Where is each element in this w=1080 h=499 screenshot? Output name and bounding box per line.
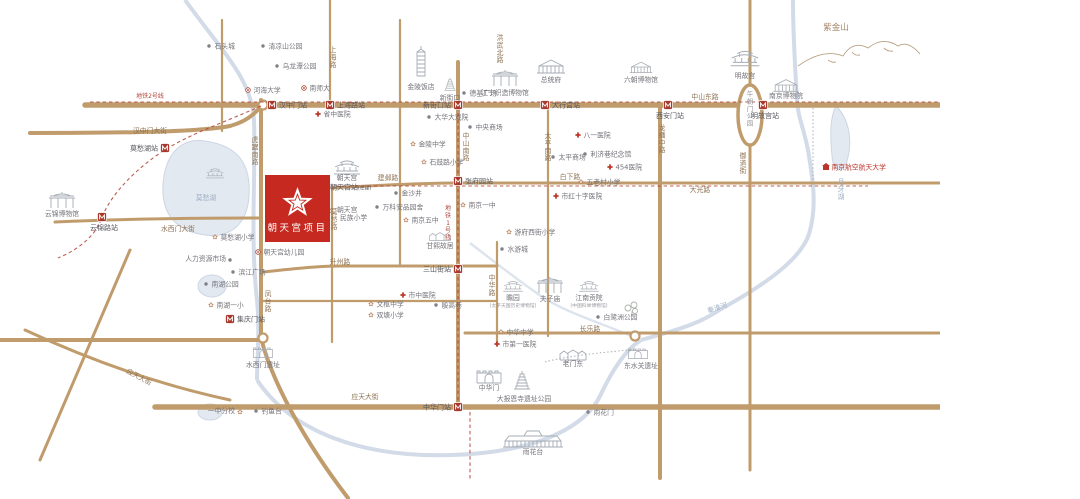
landmark-label: 云锦博物馆 <box>45 209 79 218</box>
metro-station-label: 汉中门站 <box>279 101 307 110</box>
metro-station-label: 云锦路站 <box>90 223 118 232</box>
metro-station-icon <box>454 177 463 186</box>
side-panel: 朝天宫G17项目 CHIAXIA DEVELOPMENT CHAOTIANGON… <box>940 0 1080 499</box>
metro-station-label: 三山街站 <box>423 265 451 274</box>
landmark-label: 紫金山 <box>823 22 849 33</box>
road-label: 汉中门大街 <box>133 126 167 135</box>
road-label: 大光路 <box>690 185 711 194</box>
metro-station-label: 中华门站 <box>423 403 451 412</box>
road-label: 月牙湖 <box>838 178 845 201</box>
landmark-label: 水西门遗址 <box>246 360 280 369</box>
landmark-label: 殷高巷 <box>442 300 463 309</box>
landmark-label: 八一医院 <box>584 130 611 139</box>
landmark-sublabel: (中国科举博物馆) <box>570 302 607 309</box>
map-labels: 汉中门大街中山东路建邺路白下路大光路升州路长乐路应天大街应天大街水西门大街上海路… <box>45 22 886 456</box>
landmark-label: 河海大学 <box>254 85 281 94</box>
road-label: 地铁1号线 <box>445 204 451 242</box>
landmark-label: 朝天宫 <box>337 173 358 182</box>
landmark-label: 朝天宫 <box>337 205 358 214</box>
landmark-label: 瞻园 <box>506 293 520 302</box>
road-label: 升州路 <box>330 257 351 266</box>
road-label: 长乐路 <box>580 324 601 333</box>
landmark-label: 朝天宫幼儿园 <box>264 247 305 256</box>
landmark-label: 人力资源市场 <box>185 254 226 263</box>
landmark-label: 太平商场 <box>559 152 586 161</box>
landmark-label: 南京博物院 <box>769 91 803 100</box>
landmark-label: 石头城 <box>215 41 236 50</box>
landmark-label: 市中医院 <box>409 290 436 299</box>
road-label: 龙蟠中路 <box>659 123 666 154</box>
landmark-label: 水游城 <box>508 244 529 253</box>
landmark-label: 大华大戏院 <box>435 112 469 121</box>
metro-station-icon <box>664 101 673 110</box>
location-map-poster: 汉中门大街中山东路建邺路白下路大光路升州路长乐路应天大街应天大街水西门大街上海路… <box>0 0 1080 499</box>
metro-station-label: 集庆门站 <box>237 315 265 324</box>
landmark-label: 夫子庙 <box>540 294 561 303</box>
road-label: 白下路 <box>560 172 581 181</box>
metro-station-label: 西安门站 <box>656 111 684 120</box>
landmark-label: 市红十字医院 <box>562 191 603 200</box>
landmark-label: 双塘小学 <box>377 310 404 319</box>
landmark-label: 金陵饭店 <box>407 82 434 91</box>
map-canvas: 汉中门大街中山东路建邺路白下路大光路升州路长乐路应天大街应天大街水西门大街上海路… <box>0 0 945 499</box>
landmark-label: 利济巷纪念馆 <box>591 149 632 158</box>
landmark-label: 大报恩寺遗址公园 <box>497 394 552 403</box>
metro-station-label: 张府园站 <box>465 177 493 186</box>
metro-station-label: 明故宫站 <box>751 111 779 120</box>
road-label: 应天大街 <box>351 392 378 401</box>
metro-station-label: 上海路站 <box>337 101 365 110</box>
landmark-label: 454医院 <box>616 162 643 171</box>
road-label: 地铁2号线 <box>136 92 164 100</box>
metro-station-label: 新街口站 <box>423 101 451 110</box>
landmark-label: 省中医院 <box>324 109 351 118</box>
road-label: 中山东路 <box>691 92 718 101</box>
landmark-label: 金陵中学 <box>419 139 446 148</box>
road-label: 中山南路 <box>463 131 470 162</box>
landmark-label: 中华门 <box>479 383 500 392</box>
landmark-label: 老门东 <box>563 359 584 368</box>
landmark-label: 南京一中 <box>469 200 496 209</box>
landmark-label: 乌龙潭公园 <box>283 61 317 70</box>
road-label: 午朝门公园 <box>747 89 754 128</box>
metro-station-icon <box>161 144 170 153</box>
landmark-sublabel: (太平天国历史博物馆) <box>490 302 537 309</box>
road-label: 水西门大街 <box>161 224 195 233</box>
landmark-label: 市第一医院 <box>503 339 537 348</box>
metro-station-icon <box>226 315 235 324</box>
landmark-label: 中华中学 <box>507 327 534 336</box>
landmark-label: 五老村小学 <box>587 177 621 186</box>
landmark-label: 南湖公园 <box>212 279 239 288</box>
landmark-label: 雨花台 <box>523 447 544 456</box>
metro-station-icon <box>326 101 335 110</box>
project-marker: 朝天宫项目 <box>265 175 330 242</box>
road-label: 凤台路 <box>265 290 272 313</box>
landmark-label: 南京五中 <box>412 215 439 224</box>
landmark-label: 甘熙故居 <box>426 241 453 250</box>
landmark-label: 钓鱼台 <box>262 406 283 415</box>
landmark-label: 南师大 <box>310 83 331 92</box>
landmark-label: 金沙井 <box>402 188 423 197</box>
road-label: 应天大街 <box>125 366 153 387</box>
road-label: 建邺路 <box>378 173 399 182</box>
metro-station-label: 莫愁湖站 <box>130 144 158 153</box>
landmark-label: 南京航空航天大学 <box>832 162 887 171</box>
road-label: 太平南路 <box>545 131 552 162</box>
road-label: 虎踞南路 <box>252 135 259 166</box>
landmark-label: 雨花门 <box>594 407 615 416</box>
landmark-label: 六朝博物馆 <box>624 75 658 84</box>
metro-station-icon <box>268 101 277 110</box>
landmark-label: 民族小学 <box>340 213 367 222</box>
landmark-label: 滨江广场 <box>239 267 266 276</box>
road-label: 洪武北路 <box>497 33 504 64</box>
landmark-label: 文枢中学 <box>377 299 404 308</box>
landmark-label: 莫愁湖小学 <box>221 232 255 241</box>
road-label: 上海路 <box>330 45 337 69</box>
landmark-label: 万科安品园舍 <box>383 202 424 211</box>
landmark-label: 南湖一小 <box>217 300 244 309</box>
landmark-label: 游府西街小学 <box>515 227 556 236</box>
landmark-label: 江南贡院 <box>575 293 602 302</box>
landmark-label: 石鼓路小学 <box>430 157 464 166</box>
metro-station-icon <box>541 101 550 110</box>
metro-station-icon <box>98 213 107 222</box>
landmark-label: 一中分校 <box>208 406 235 415</box>
landmark-label: 白鹭洲公园 <box>604 312 638 321</box>
project-name-label: 朝天宫项目 <box>267 222 327 234</box>
road-label: 御道街 <box>740 151 747 175</box>
metro-station-icon <box>759 101 768 110</box>
landmark-label: 总统府 <box>541 75 562 84</box>
landmark-label: 中央商场 <box>476 122 503 131</box>
landmark-label: 明故宫 <box>735 71 756 80</box>
landmark-label: 清凉山公园 <box>269 41 303 50</box>
metro-station-icon <box>454 403 463 412</box>
landmark-label: 东水关遗址 <box>624 361 658 370</box>
road-label: 中华路 <box>489 273 496 297</box>
metro-station-label: 大行宫站 <box>552 101 580 110</box>
metro-station-icon <box>454 265 463 274</box>
landmark-label: 德基广场 <box>470 88 497 97</box>
metro-station-label: 朝天宫站(在建) <box>330 183 371 192</box>
landmark-label: 莫愁湖 <box>196 193 217 202</box>
